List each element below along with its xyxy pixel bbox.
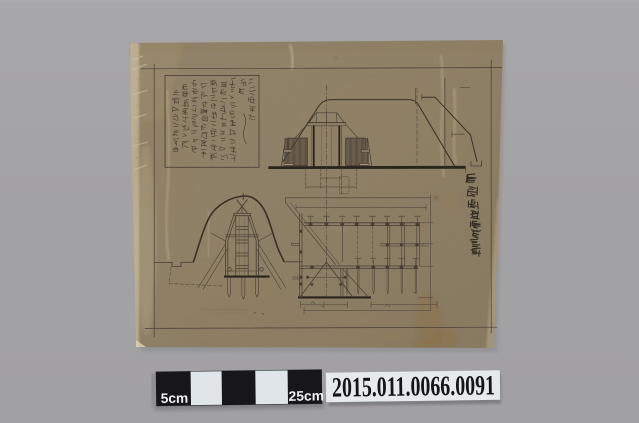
svg-text:2015.011.0066.0091: 2015.011.0066.0091 [332,370,495,403]
svg-text:5cm: 5cm [161,391,189,406]
svg-text:25cm: 25cm [289,388,324,403]
